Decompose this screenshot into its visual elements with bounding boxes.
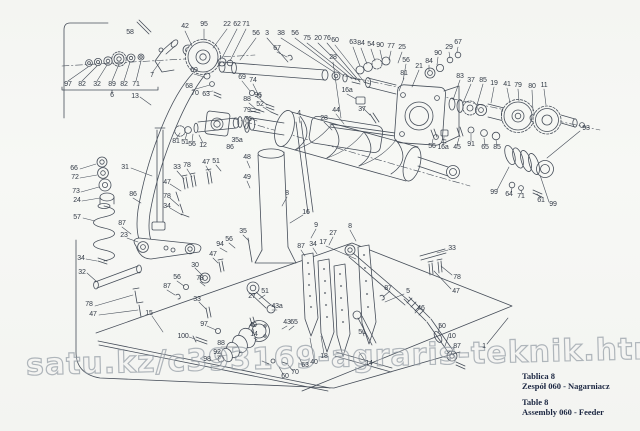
caption-block: Tablica 8 Zespół 060 - Nagarniacz Table … [522,371,610,417]
drive-chain [137,73,204,256]
upper-shaft [219,55,370,84]
caption-en-title: Table 8 [522,397,610,407]
rocker-assembly [94,238,224,344]
caption-pl-line: Zespół 060 - Nagarniacz [522,381,610,391]
chute-tube [255,149,296,263]
gear-train [449,98,584,134]
caption-pl-title: Tablica 8 [522,371,610,381]
scanned-parts-diagram-page: satu.kz/c393169-agraris-teknik.html 5874… [0,0,640,431]
idler-parts [204,73,278,115]
drive-sprocket [183,40,233,75]
coupling-spring [503,144,554,197]
caption-en-line: Assembly 060 - Feeder [522,407,610,417]
tensioner-washers [62,52,158,93]
